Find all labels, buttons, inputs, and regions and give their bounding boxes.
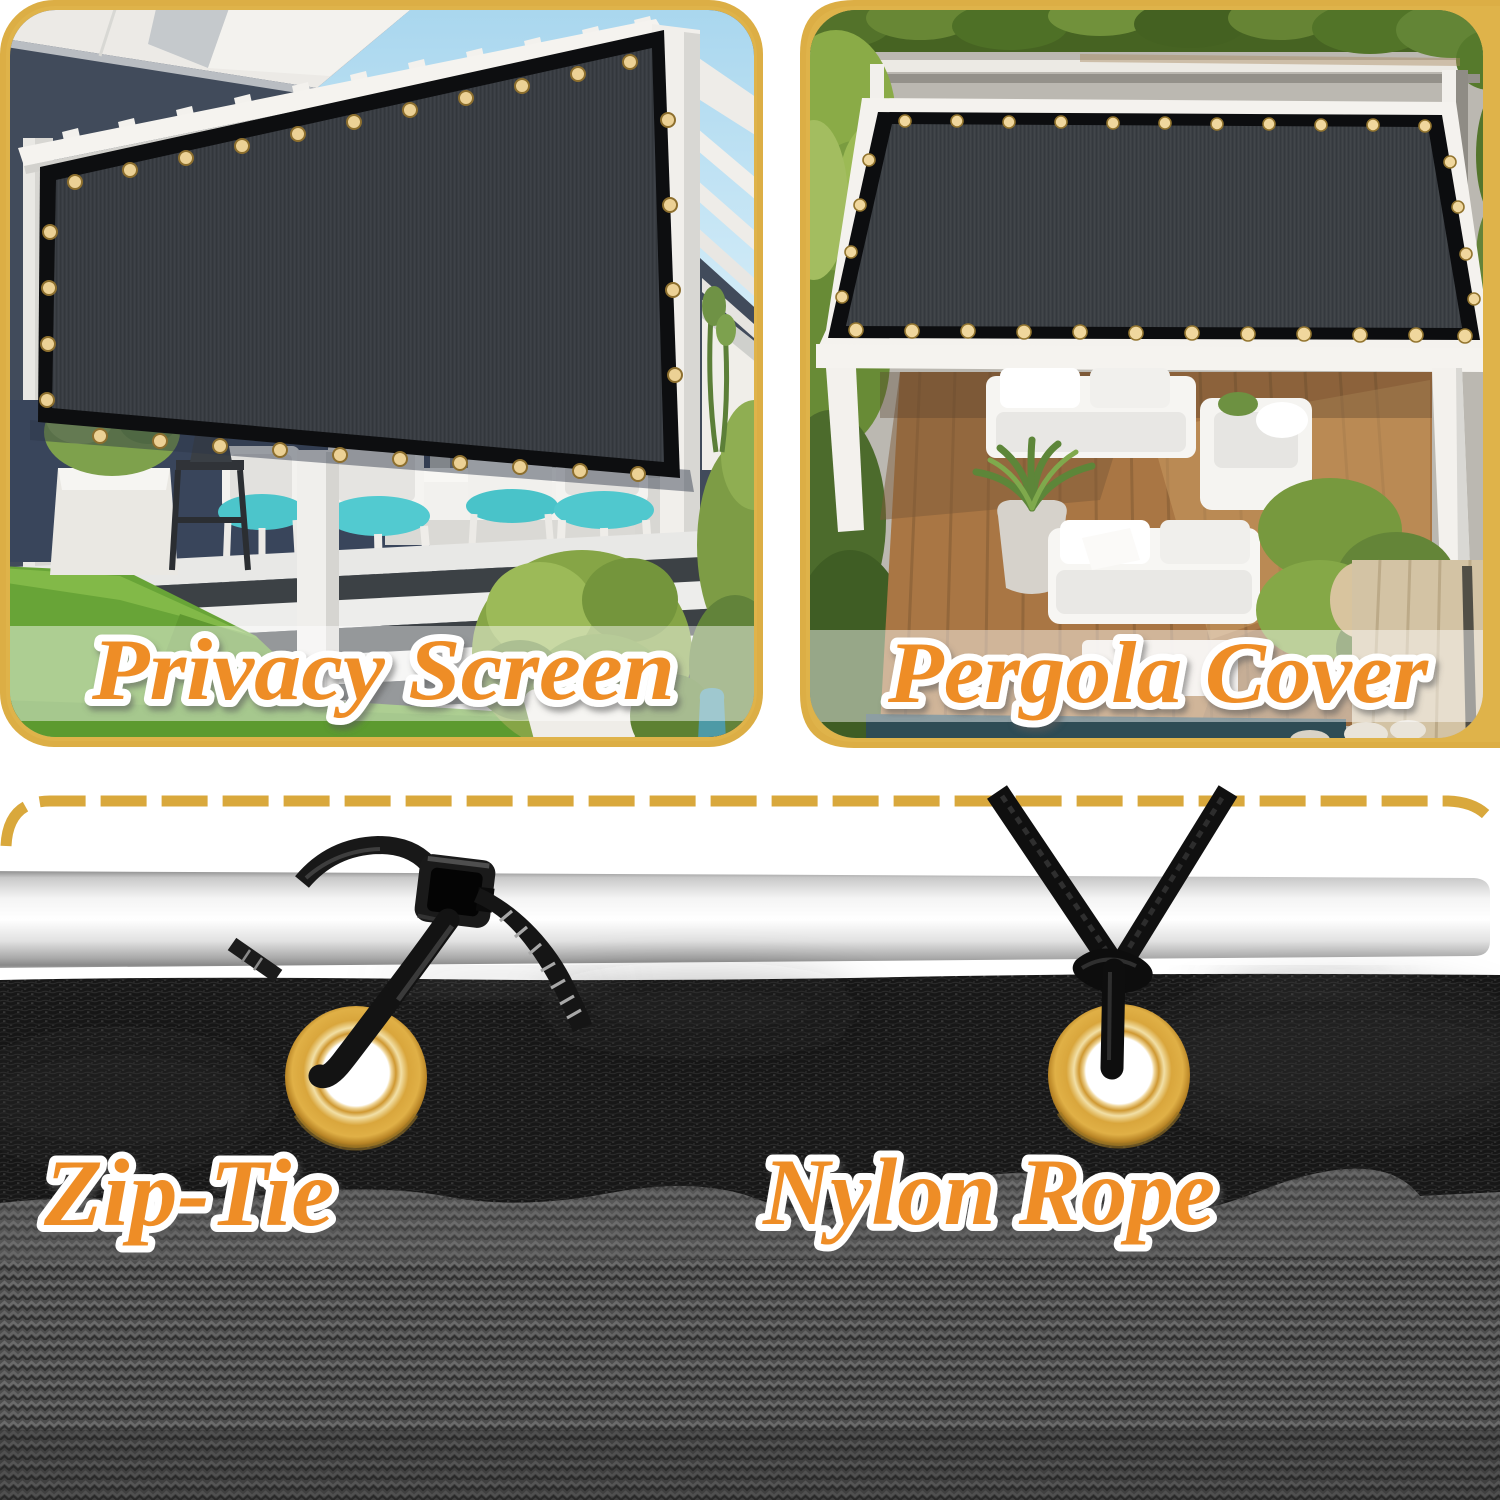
- svg-text:Privacy Screen: Privacy Screen: [91, 622, 675, 719]
- svg-text:Zip-Tie: Zip-Tie: [43, 1140, 334, 1246]
- svg-text:Nylon Rope: Nylon Rope: [762, 1139, 1215, 1245]
- svg-text:Pergola Cover: Pergola Cover: [887, 625, 1429, 722]
